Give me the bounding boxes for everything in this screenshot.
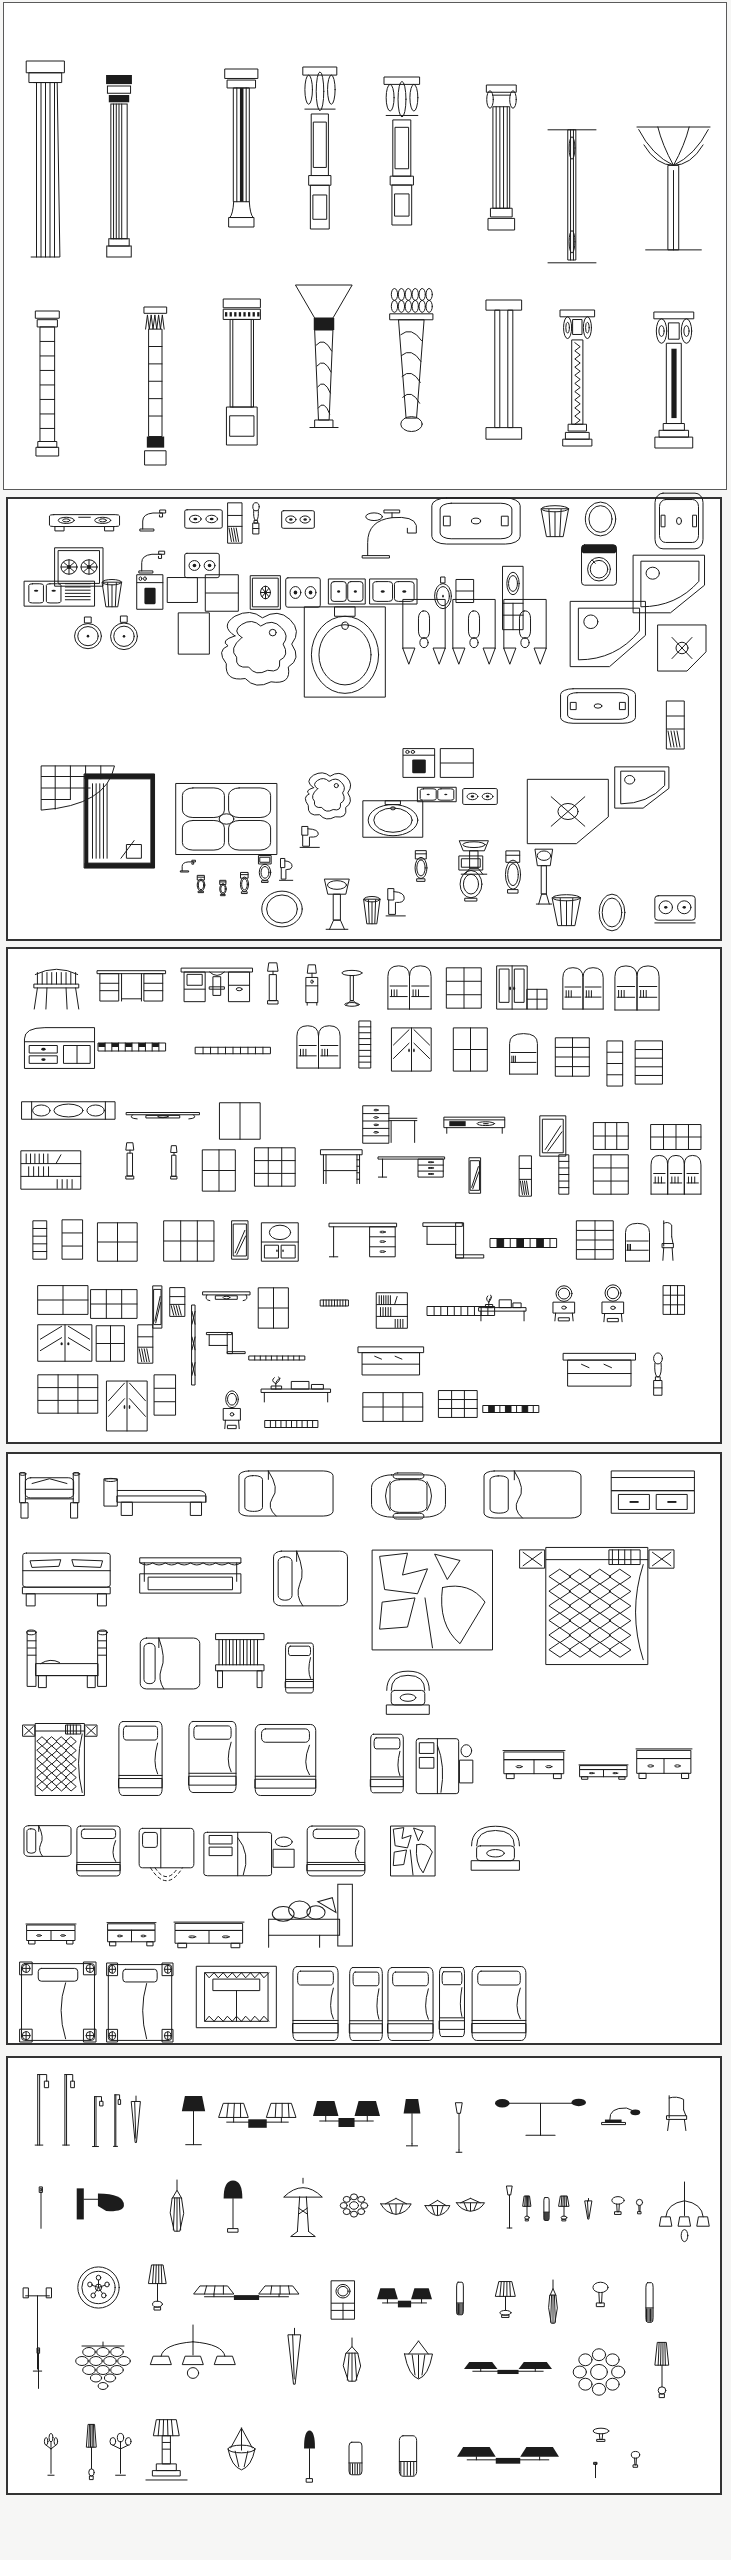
storage-box	[167, 577, 198, 603]
bed-plan-vertical	[118, 1720, 163, 1797]
bollard-lamp	[628, 2450, 643, 2474]
locker-grid	[663, 1285, 685, 1315]
checkered-shelf	[97, 1039, 167, 1055]
classic-chandelier	[146, 2325, 240, 2385]
corinthian-pilaster-2	[380, 77, 424, 225]
toilet-front	[499, 850, 527, 894]
oval-mirror	[584, 501, 617, 537]
toilet-tiny-2	[237, 872, 252, 894]
tv-on-stand	[167, 1145, 181, 1179]
toilet-side-small	[298, 826, 324, 849]
plant-stand-desk	[478, 1285, 527, 1324]
single-bed-side	[100, 1478, 208, 1517]
cabinet-small	[167, 1287, 188, 1317]
corner-tub-scalloped	[614, 766, 670, 809]
scene-shelf	[260, 1367, 332, 1405]
clock-case-lamp	[327, 2280, 359, 2320]
sink-tiny	[217, 880, 229, 896]
curved-headboard-bed	[464, 1822, 527, 1875]
wash-basin-oval	[260, 890, 304, 928]
bed-plan-vertical-5	[349, 1966, 383, 2042]
ionic-column	[481, 85, 522, 230]
ladder-narrow	[559, 1154, 569, 1195]
vertical-bathtub-plan	[654, 492, 704, 550]
bed-plan-with-side	[415, 1732, 474, 1799]
unmade-bed-plan-2	[390, 1825, 436, 1877]
dome-floor-lamp	[215, 2177, 251, 2237]
vanity-two-shade-bar	[464, 2357, 552, 2380]
long-cone-pendant	[279, 2327, 310, 2392]
diamond-corner-shower	[526, 778, 610, 845]
vanity-two-shade-bar-2	[457, 2440, 559, 2472]
street-lamp-2	[52, 2068, 80, 2150]
scroll-shelf	[125, 1109, 201, 1125]
cone-pedestal-basin	[549, 893, 584, 927]
wall-sconce-solid	[72, 2185, 131, 2227]
cylinder-wall-light	[342, 2440, 369, 2477]
cabinet-door-panel	[205, 574, 239, 612]
headboard-bed-plan	[471, 1965, 527, 2042]
bed-plan-vertical-7	[439, 1966, 465, 2038]
thermos-stand	[647, 1352, 669, 1398]
fluted-column	[102, 75, 136, 257]
bed-plan-vertical-6	[387, 1966, 434, 2042]
square-window	[202, 1149, 236, 1192]
five-globe-post	[103, 2432, 138, 2479]
narrow-mirror	[468, 1157, 482, 1194]
panel-bathroom-fixtures	[6, 497, 722, 941]
pole-lamp	[107, 2090, 124, 2150]
armoire-rounded	[509, 1030, 538, 1075]
wall-shelf-hatch	[37, 1285, 89, 1315]
bed-plan-vertical-4	[306, 1825, 366, 1877]
wall-panel	[663, 700, 688, 750]
canopy-bed-plan	[20, 1962, 96, 2042]
mushroom-lamp-small	[634, 2198, 645, 2220]
oval-headboard-bed-plan	[292, 1965, 339, 2042]
faceted-basin	[538, 504, 572, 538]
chair-outline	[657, 2095, 695, 2132]
chandelier-three-arm	[657, 2182, 712, 2249]
corinthian-pilaster	[299, 67, 341, 229]
urinal-stall-2	[451, 598, 497, 670]
wardrobe-pair	[97, 1222, 138, 1262]
round-sink	[72, 617, 104, 650]
urinal-front	[410, 850, 432, 882]
console-strip	[248, 1354, 306, 1362]
toilet-side-2	[384, 888, 410, 918]
single-bed-plan-2	[482, 1470, 583, 1519]
arched-window-2	[296, 1022, 341, 1069]
daybed-with-cushions	[265, 1883, 356, 1950]
shelf-unit	[576, 1220, 614, 1260]
dark-counter	[489, 1234, 558, 1252]
wall-grill-lights	[377, 2280, 432, 2317]
ornate-shaft-column	[555, 310, 600, 446]
spindle-bench	[30, 962, 83, 1010]
volute-column	[648, 312, 700, 448]
four-poster-bed	[20, 1630, 114, 1690]
small-hob	[462, 787, 498, 806]
mini-cone-lamp	[580, 2198, 597, 2222]
dresser-with-desk	[362, 1105, 418, 1144]
keyhole-sconce	[588, 2462, 603, 2479]
cabinet-oval-front	[261, 1222, 299, 1262]
low-shelf	[320, 1297, 349, 1309]
arched-bookcase	[387, 962, 432, 1010]
bookshelf-low	[20, 1150, 82, 1190]
double-sink-wall	[654, 893, 696, 927]
oval-mirror-stand	[217, 1390, 247, 1432]
bookcase-shelves	[555, 1037, 590, 1077]
floor-lamp-shade	[650, 2340, 674, 2400]
mirrored-wardrobe	[391, 1027, 432, 1072]
tall-cabinet-front	[225, 502, 245, 544]
oval-bathtub-frame	[303, 605, 387, 699]
unmade-bed-plan	[370, 1548, 495, 1652]
hanging-lantern	[163, 2180, 191, 2244]
wardrobe-2door	[219, 1102, 261, 1140]
pentagon-shower-tray	[657, 624, 707, 672]
lattice-mast	[188, 1305, 199, 1385]
pleated-lamp-tall	[488, 2280, 523, 2319]
file-cabinet	[607, 1040, 623, 1087]
loft-bed-frame	[320, 1149, 363, 1185]
vanity-shelf	[202, 1287, 251, 1309]
twin-shaft-column	[483, 300, 525, 445]
single-bed-front	[16, 1472, 83, 1520]
teardrop-pendant	[544, 2280, 562, 2334]
solid-table-lamp	[398, 2098, 426, 2150]
long-shelf	[194, 1044, 272, 1057]
narrow-bookcase	[33, 1220, 47, 1260]
canopy-bed-front	[138, 1557, 243, 1599]
nightstand-with-lamp	[300, 964, 324, 1006]
bed-plan-small	[23, 1825, 72, 1857]
small-cabinet	[62, 1219, 83, 1260]
solid-shade-floor-lamp	[174, 2095, 213, 2149]
valance-bed-plan	[195, 1965, 278, 2029]
gas-cooktop-plan	[48, 512, 121, 534]
wardrobe-arched-3	[650, 1152, 702, 1195]
open-shelf	[635, 1040, 663, 1085]
twin-shade-rail	[194, 2280, 299, 2307]
appliance-pair	[417, 785, 457, 804]
dome-floor-lamp-2	[299, 2427, 320, 2487]
soap-dish	[281, 509, 315, 530]
urinal-stall-3	[502, 598, 548, 670]
simple-bed-plan	[139, 1637, 201, 1690]
cabinet-arrows	[37, 1374, 99, 1414]
mini-cylinder-lamp	[541, 2196, 552, 2222]
bar-table	[338, 970, 366, 1007]
pleated-table-lamp	[142, 2263, 173, 2312]
twin-shade-lamp-solid	[313, 2090, 380, 2140]
wall-stem-light	[34, 2186, 48, 2232]
single-bed-plan	[237, 1470, 335, 1517]
washer-front-pair-b	[440, 748, 474, 778]
corner-bathtub-2	[569, 600, 647, 668]
tall-cabinet-2	[135, 1324, 156, 1364]
bed-plan-vertical-3	[76, 1825, 121, 1877]
pedestal-lamp	[261, 962, 285, 1004]
desk-lamp-stand	[121, 1142, 139, 1179]
bathtub-plan	[430, 497, 522, 545]
bed-plan-vertical-2	[188, 1720, 237, 1794]
bed-side-low-2	[579, 1762, 628, 1780]
panel-lamps-lighting	[6, 2056, 722, 2495]
shield-sconce	[334, 2338, 370, 2392]
desk-lamp	[601, 2103, 650, 2139]
slim-floor-lamp	[450, 2098, 468, 2157]
washing-machine-top	[580, 544, 618, 586]
single-burner-hob	[250, 575, 281, 610]
pear-bathtub	[302, 770, 354, 822]
tv-wall-unit	[362, 1392, 424, 1422]
arched-window	[614, 962, 660, 1011]
banded-column	[32, 311, 63, 456]
wardrobe-two-door	[453, 1027, 488, 1072]
toilet-side-tiny	[278, 858, 296, 882]
vanity-mirror-table	[545, 1285, 583, 1324]
storage-bed-front	[608, 1470, 698, 1517]
pedestal-desk	[328, 1220, 398, 1260]
corinthian-column	[140, 307, 171, 465]
dresser-low-3	[174, 1917, 244, 1949]
bed-with-table	[202, 1827, 296, 1880]
control-panel	[184, 508, 223, 530]
doric-column	[23, 61, 68, 257]
bed-corner-side	[636, 1743, 692, 1780]
tube-wall-light	[642, 2280, 657, 2325]
slanted-mirror	[598, 893, 626, 932]
tuscan-column	[222, 69, 261, 227]
water-heater	[248, 502, 264, 536]
wardrobe-combo	[496, 965, 548, 1010]
faucet-side-view-2	[138, 547, 169, 573]
cylinder-wall-light-2	[390, 2433, 426, 2479]
mini-table-lamp	[520, 2195, 534, 2222]
bed-side-low	[503, 1745, 565, 1780]
toilet-cistern-tiny	[254, 855, 276, 883]
cabinet-grid-2	[650, 1124, 702, 1150]
baluster-post	[548, 127, 596, 267]
cad-collage	[0, 0, 731, 2560]
ladder-rack	[359, 1020, 371, 1069]
garden-parasol-lamp	[275, 2177, 331, 2239]
mini-shade-lamp	[555, 2195, 573, 2222]
shower-enclosure-plan	[174, 782, 279, 856]
spiral-column-beaded	[380, 287, 443, 436]
slatted-bed-side	[215, 1630, 265, 1690]
flower-medallion	[569, 2345, 629, 2399]
twin-shade-lamp	[219, 2093, 296, 2140]
quilt-bed-plan-small	[23, 1722, 97, 1797]
chest-small	[154, 1374, 176, 1416]
canopy-bed-plan-2	[107, 1963, 173, 2042]
striped-post-light	[453, 2280, 467, 2317]
counter-with-sink	[443, 1114, 506, 1135]
faucet-tiny	[180, 858, 198, 872]
rectangular-bathtub-plan	[559, 688, 637, 724]
street-lamp-small	[83, 2092, 108, 2150]
open-bookcase	[376, 1292, 408, 1329]
cup-uplight	[587, 2280, 614, 2317]
globe-cluster-chandelier	[68, 2342, 138, 2392]
pedestal-sink-side	[320, 878, 354, 932]
chained-bowl-pendant	[219, 2427, 264, 2482]
upholstered-bed-front	[380, 1667, 436, 1719]
dresser-low	[26, 1920, 76, 1945]
kitchen-island	[357, 1344, 425, 1380]
bed-plan-narrow	[370, 1733, 404, 1794]
picture-strip	[264, 1417, 319, 1431]
triple-globe-post	[40, 2432, 62, 2479]
collage-cabinet	[438, 1390, 478, 1418]
standing-mirror	[537, 1115, 569, 1157]
bed-plan-fan	[254, 1723, 317, 1797]
square-pillar	[219, 299, 265, 445]
toilet-tiny	[194, 875, 208, 893]
torchiere-lamp	[502, 2182, 517, 2232]
crib-plan	[285, 1642, 314, 1694]
page-background: { "page": { "description": "cad-blocks-c…	[0, 0, 731, 2560]
cabinet-grid	[593, 1122, 629, 1150]
quilted-bed-plan	[520, 1545, 674, 1667]
double-bed-plan	[272, 1550, 349, 1607]
spiral-column-flared	[292, 285, 356, 435]
hatched-room	[106, 1380, 148, 1432]
dresser-low-2	[107, 1918, 156, 1947]
palm-capital-column	[630, 127, 717, 255]
panel-beds	[6, 1452, 722, 2045]
mirror-strip	[152, 1285, 163, 1329]
boom-floor-lamp	[495, 2093, 586, 2140]
dresser-nine-drawer	[254, 1147, 296, 1187]
desk-with-hutch	[180, 965, 254, 1004]
street-lamp	[23, 2068, 55, 2150]
mirror-cabinet	[230, 1220, 250, 1260]
arched-bookcase-2	[562, 964, 604, 1010]
double-bed-front	[19, 1552, 114, 1607]
bed-with-rug	[138, 1827, 195, 1895]
tall-chair	[657, 1220, 678, 1262]
desk-return	[377, 1155, 446, 1179]
washer-front-pair-a	[402, 748, 436, 778]
sauna-room-plan	[83, 772, 156, 870]
curved-door-cabinet	[625, 1220, 650, 1262]
pin-sconce	[33, 2347, 44, 2392]
dresser-mirror	[594, 1284, 632, 1325]
dark-cell-counter	[482, 1402, 540, 1416]
double-sink-drainboard	[23, 578, 96, 610]
cone-basin	[362, 895, 382, 925]
double-basin	[328, 575, 366, 608]
basket-pendant	[377, 2198, 415, 2219]
panel-furniture-cabinets	[6, 947, 722, 1444]
cone-floor-lamp	[125, 2095, 147, 2149]
round-sink-2	[108, 616, 140, 651]
cabinet-doors	[258, 1287, 289, 1329]
column-pedestal-lamp	[142, 2417, 191, 2484]
corner-desk	[422, 1222, 485, 1262]
wall-shelf-2	[90, 1289, 138, 1319]
corner-basin	[100, 578, 124, 608]
pleated-floor-lamp	[83, 2422, 100, 2482]
kitchen-faucet-large	[360, 510, 424, 558]
shower-door	[178, 612, 210, 655]
snowflake-medallion	[338, 2192, 370, 2219]
sideboard-arched	[23, 1022, 96, 1069]
faucet-side-view	[139, 506, 170, 531]
washing-machine-front	[136, 574, 164, 610]
computer-desk	[96, 967, 167, 1004]
counter-large	[562, 1350, 637, 1392]
horn-basket-pendant	[401, 2340, 436, 2390]
scalloped-sconce	[453, 2198, 488, 2215]
small-desk	[206, 1332, 246, 1356]
tall-cabinet	[517, 1155, 534, 1197]
wardrobe-grid	[593, 1154, 629, 1195]
wardrobe-narrow	[96, 1325, 125, 1362]
chandelier-medallion	[76, 2263, 121, 2312]
freeform-bathtub	[216, 608, 302, 690]
mushroom-lamp-pair	[607, 2195, 629, 2222]
oval-counter-basin	[362, 800, 424, 838]
display-cabinet	[446, 967, 482, 1009]
half-bowl-sconce	[422, 2200, 453, 2220]
wardrobe-4door	[37, 1324, 93, 1362]
toilet-cistern-side	[450, 855, 492, 902]
panel-classical-columns	[3, 2, 727, 490]
urinal-stall	[401, 598, 447, 670]
bracket-mushroom-sconce	[587, 2427, 615, 2447]
armchair-bed-plan	[370, 1472, 447, 1520]
decorative-frame-oval	[20, 1099, 117, 1122]
cabinet-3col	[163, 1220, 215, 1262]
